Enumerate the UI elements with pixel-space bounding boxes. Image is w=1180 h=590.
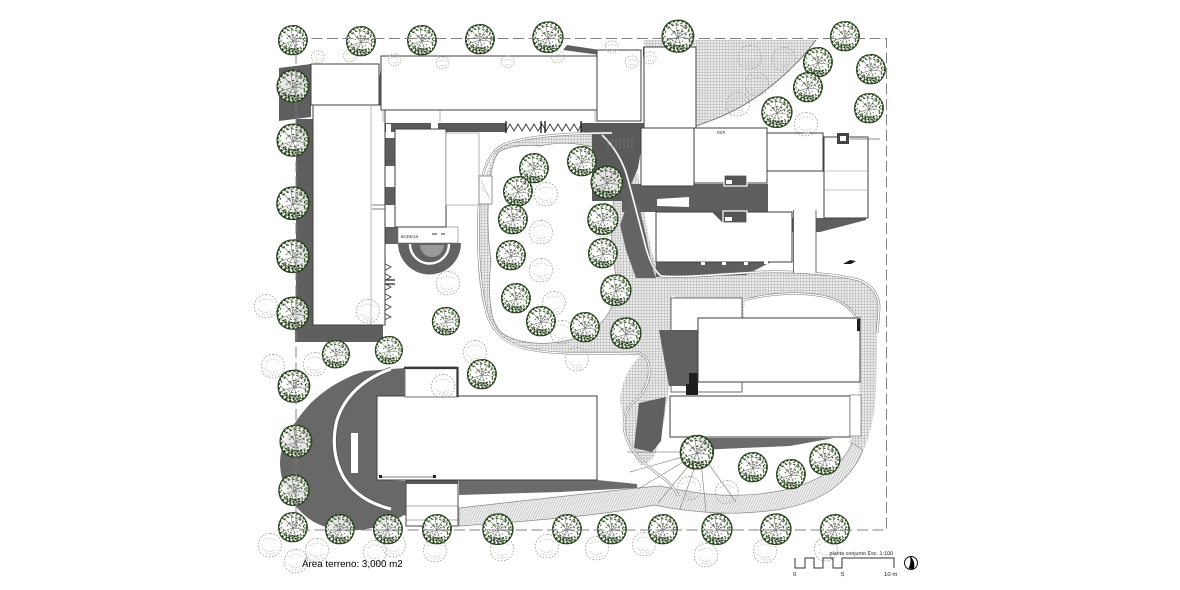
- svg-text:Área terreno: 3,000 m2: Área terreno: 3,000 m2: [302, 558, 403, 570]
- svg-text:10 m: 10 m: [884, 571, 897, 578]
- svg-text:planta conjunto Esc. 1:100: planta conjunto Esc. 1:100: [829, 551, 893, 557]
- svg-text:BODEGA: BODEGA: [401, 234, 418, 239]
- svg-text:REF.: REF.: [717, 130, 726, 135]
